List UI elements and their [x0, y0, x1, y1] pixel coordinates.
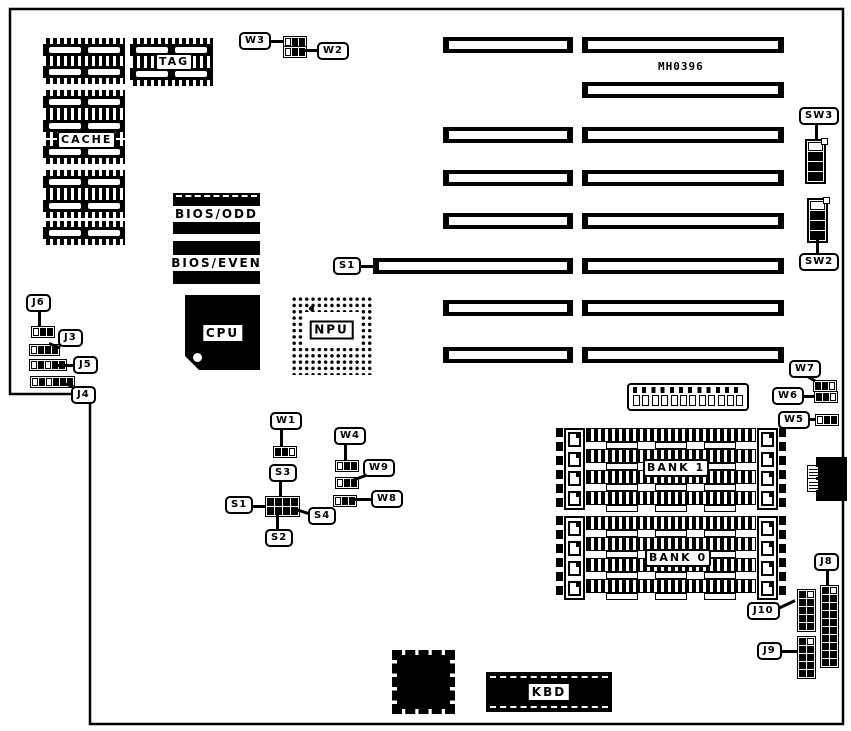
- pin-cell: [822, 651, 829, 658]
- pin-cell: [799, 615, 806, 622]
- board-outline: [0, 0, 851, 731]
- simm-latch: [761, 581, 774, 596]
- pin-cell: [807, 615, 814, 622]
- pin-cell: [830, 643, 837, 650]
- pin-cell: [283, 498, 290, 506]
- cpu-chip: CPU: [185, 295, 260, 370]
- pin-cell: [699, 395, 706, 406]
- pin-cell: [344, 479, 350, 487]
- pin-cell: [45, 361, 51, 369]
- kbd-chip: KBD: [486, 672, 612, 712]
- cache-chip: [43, 60, 125, 84]
- expansion-slot: [582, 37, 784, 53]
- pin-cell: [799, 591, 806, 598]
- jumper-w8: [333, 495, 357, 507]
- jumper-w1: [273, 446, 297, 458]
- tag-label: TAG: [155, 53, 193, 71]
- pin-cell: [736, 395, 743, 406]
- callout-j4: J4: [71, 386, 96, 404]
- pin-cell: [830, 635, 837, 642]
- bank-edge: [779, 516, 786, 600]
- expansion-slot: [582, 170, 784, 186]
- pin-cell: [807, 607, 814, 614]
- pin-cell: [45, 346, 51, 354]
- pin-cell: [831, 416, 837, 424]
- callout-sw3: SW3: [799, 107, 839, 125]
- expansion-slot: [582, 258, 784, 274]
- pin-cell: [823, 393, 829, 401]
- pin-cell: [633, 395, 640, 406]
- pin-cell: [824, 416, 830, 424]
- pin-cell: [807, 662, 814, 669]
- simm-socket: [586, 491, 756, 512]
- simm-latch: [761, 561, 774, 576]
- pin-cell: [661, 395, 668, 406]
- pin-cell: [40, 328, 46, 336]
- simm-bank-1: BANK 1: [556, 428, 786, 510]
- callout-w7: W7: [789, 360, 821, 378]
- expansion-slot: [443, 37, 573, 53]
- callout-w8: W8: [371, 490, 403, 508]
- pointer-line: [816, 240, 819, 254]
- simm-socket: [586, 428, 756, 449]
- pin-cell: [727, 395, 734, 406]
- pointer-line: [349, 498, 372, 501]
- pin-cell: [708, 395, 715, 406]
- pin-cell: [830, 587, 837, 594]
- simm-latch: [568, 521, 581, 536]
- pin-cell: [282, 448, 288, 456]
- callout-j5: J5: [73, 356, 98, 374]
- bank-bracket: [757, 516, 778, 600]
- callout-j8: J8: [814, 553, 839, 571]
- callout-j6: J6: [26, 294, 51, 312]
- callout-j9: J9: [757, 642, 782, 660]
- bank-bracket: [564, 428, 585, 510]
- part-number: MH0396: [658, 60, 704, 73]
- pin-cell: [808, 172, 823, 181]
- bios-even-chip: BIOS/EVEN: [173, 241, 260, 284]
- s1-slot: [373, 258, 573, 274]
- pin-cell: [808, 162, 823, 171]
- simm-socket: [586, 516, 756, 537]
- callout-s4: S4: [308, 507, 336, 525]
- pin-cell: [337, 479, 343, 487]
- pin-cell: [342, 497, 348, 505]
- pin-cell: [822, 595, 829, 602]
- pointer-line: [279, 480, 282, 497]
- callout-w6: W6: [772, 387, 804, 405]
- pin-cell: [289, 448, 295, 456]
- pin-cell: [799, 646, 806, 653]
- bank0-label: BANK 0: [645, 549, 711, 567]
- pointer-line: [781, 650, 797, 653]
- pin-header-j8: [820, 585, 839, 668]
- pin-cell: [38, 361, 44, 369]
- pin-cell: [822, 619, 829, 626]
- simm-latch: [761, 471, 774, 486]
- pin-cell: [807, 599, 814, 606]
- connector-pin: [807, 478, 820, 492]
- expansion-slot: [582, 127, 784, 143]
- callout-s3: S3: [269, 464, 297, 482]
- pointer-line: [815, 124, 818, 140]
- cache-label: CACHE: [57, 131, 116, 149]
- pin-cell: [822, 635, 829, 642]
- callout-w1: W1: [270, 412, 302, 430]
- pin-cell: [807, 638, 814, 645]
- pin-cell: [799, 654, 806, 661]
- pin-cell: [32, 378, 38, 386]
- pin-cell: [808, 152, 823, 161]
- pin-cell: [680, 395, 687, 406]
- pin-cell: [292, 38, 298, 46]
- expansion-slot: [443, 213, 573, 229]
- pointer-line: [57, 364, 74, 367]
- npu-socket-center: NPU: [304, 312, 359, 348]
- bank-bracket: [564, 516, 585, 600]
- npu-label: NPU: [309, 321, 354, 340]
- jumper-w6: [814, 391, 838, 403]
- pin-cell: [283, 507, 290, 515]
- pin-cell: [299, 38, 305, 46]
- callout-sw2: SW2: [799, 253, 839, 271]
- pin-cell: [808, 142, 823, 151]
- callout-s2: S2: [265, 529, 293, 547]
- callout-s1: S1: [225, 496, 253, 514]
- cache-chip: [43, 90, 125, 114]
- simm-latch: [761, 452, 774, 467]
- simm-latch: [568, 541, 581, 556]
- pin-cell: [337, 462, 343, 470]
- npu-pin1-dot: [309, 306, 314, 311]
- callout-s1-slot: S1: [333, 257, 361, 275]
- callout-w3: W3: [239, 32, 271, 50]
- cpu-label: CPU: [203, 325, 242, 341]
- berg-header: [627, 383, 749, 411]
- expansion-slot: [443, 300, 573, 316]
- pin-cell: [830, 393, 836, 401]
- pin-cell: [47, 328, 53, 336]
- pin-cell: [799, 670, 806, 677]
- jumper-j6: [31, 326, 55, 338]
- pin-cell: [33, 328, 39, 336]
- motherboard-diagram: CACHE TAG W3 W2 BIOS/ODD BIOS/EVEN CPU N…: [0, 0, 851, 731]
- pin-cell: [718, 395, 725, 406]
- pin-cell: [807, 646, 814, 653]
- bank-bracket: [757, 428, 778, 510]
- pointer-line: [344, 443, 347, 461]
- pin-cell: [822, 627, 829, 634]
- pin-cell: [799, 638, 806, 645]
- dip-switch-sw2: [807, 198, 828, 243]
- qfp-chip: [392, 650, 455, 714]
- cache-chip: [43, 170, 125, 194]
- pin-cell: [830, 611, 837, 618]
- callout-j10: J10: [747, 602, 780, 620]
- pin-cell: [285, 48, 291, 56]
- pin-cell: [822, 587, 829, 594]
- pin-cell: [830, 651, 837, 658]
- pin-cell: [799, 599, 806, 606]
- bank-edge: [556, 516, 563, 600]
- pin-cell: [642, 395, 649, 406]
- expansion-slot: [443, 347, 573, 363]
- simm-socket: [586, 579, 756, 600]
- bios-even-label: BIOS/EVEN: [168, 255, 265, 271]
- pin-cell: [822, 611, 829, 618]
- expansion-slot: [582, 347, 784, 363]
- pin-cell: [830, 619, 837, 626]
- pin-cell: [822, 643, 829, 650]
- simm-latch: [568, 471, 581, 486]
- pointer-line: [38, 312, 41, 327]
- pin-cell: [46, 378, 52, 386]
- bank-edge: [779, 428, 786, 510]
- pin-cell: [292, 48, 298, 56]
- jumper-w4: [335, 460, 359, 472]
- pointer-line: [826, 570, 829, 586]
- cache-chip: [43, 38, 125, 62]
- pin-cell: [652, 395, 659, 406]
- dip-switch-sw3: [805, 139, 826, 184]
- pin-cell: [335, 497, 341, 505]
- callout-j3: J3: [58, 329, 83, 347]
- bank-edge: [556, 428, 563, 510]
- pin-cell: [829, 382, 835, 390]
- pin-cell: [31, 361, 37, 369]
- simm-bank-0: BANK 0: [556, 516, 786, 600]
- pin-header-j9: [797, 636, 816, 679]
- callout-w4: W4: [334, 427, 366, 445]
- pin-cell: [810, 211, 825, 220]
- pin-cell: [799, 623, 806, 630]
- pointer-line: [280, 429, 283, 447]
- pin-cell: [799, 662, 806, 669]
- cache-chip: [43, 194, 125, 218]
- pin-cell: [830, 595, 837, 602]
- pin-cell: [810, 201, 825, 210]
- jumper-w2: [283, 46, 307, 58]
- pin-cell: [830, 627, 837, 634]
- simm-latch: [568, 581, 581, 596]
- pin-cell: [822, 382, 828, 390]
- simm-latch: [568, 432, 581, 447]
- simm-latch: [568, 561, 581, 576]
- callout-w2: W2: [317, 42, 349, 60]
- pointer-line: [301, 49, 317, 52]
- pin-cell: [816, 393, 822, 401]
- simm-latch: [761, 541, 774, 556]
- simm-latch: [761, 491, 774, 506]
- callout-w5: W5: [778, 411, 810, 429]
- pin-cell: [807, 591, 814, 598]
- pin-cell: [275, 498, 282, 506]
- keyboard-connector: [816, 457, 847, 501]
- pin-cell: [344, 462, 350, 470]
- callout-w9: W9: [363, 459, 395, 477]
- pin-cell: [815, 382, 821, 390]
- expansion-slot: [443, 127, 573, 143]
- pin-cell: [351, 462, 357, 470]
- expansion-slot: [582, 82, 784, 98]
- pin-cell: [830, 659, 837, 666]
- pin-cell: [267, 507, 274, 515]
- simm-latch: [568, 491, 581, 506]
- pin-cell: [39, 378, 45, 386]
- kbd-label: KBD: [529, 684, 569, 700]
- pin-cell: [807, 623, 814, 630]
- pin-cell: [671, 395, 678, 406]
- bank1-label: BANK 1: [643, 459, 709, 477]
- pin-cell: [817, 416, 823, 424]
- cache-chip: [43, 221, 125, 245]
- pin-cell: [53, 378, 59, 386]
- simm-latch: [568, 452, 581, 467]
- simm-latch: [761, 521, 774, 536]
- pin-header-j10: [797, 589, 816, 632]
- pin-cell: [807, 654, 814, 661]
- connector-pin: [807, 465, 820, 479]
- pin-cell: [275, 448, 281, 456]
- pin-cell: [822, 603, 829, 610]
- pin-cell: [810, 231, 825, 240]
- npu-socket: NPU: [290, 295, 373, 375]
- pin-cell: [291, 498, 298, 506]
- pin-cell: [689, 395, 696, 406]
- expansion-slot: [582, 300, 784, 316]
- pin-cell: [267, 498, 274, 506]
- pin-cell: [807, 670, 814, 677]
- pin-cell: [38, 346, 44, 354]
- pin-cell: [799, 607, 806, 614]
- pin-cell: [822, 659, 829, 666]
- simm-latch: [761, 432, 774, 447]
- expansion-slot: [443, 170, 573, 186]
- bios-odd-chip: BIOS/ODD: [173, 193, 260, 234]
- pin-cell: [830, 603, 837, 610]
- pin-cell: [810, 221, 825, 230]
- pin-cell: [31, 346, 37, 354]
- jumper-w5: [815, 414, 839, 426]
- cpu-pin1-dot: [193, 353, 202, 362]
- pin-cell: [285, 38, 291, 46]
- expansion-slot: [582, 213, 784, 229]
- bios-odd-label: BIOS/ODD: [172, 206, 261, 222]
- pointer-line: [276, 514, 279, 530]
